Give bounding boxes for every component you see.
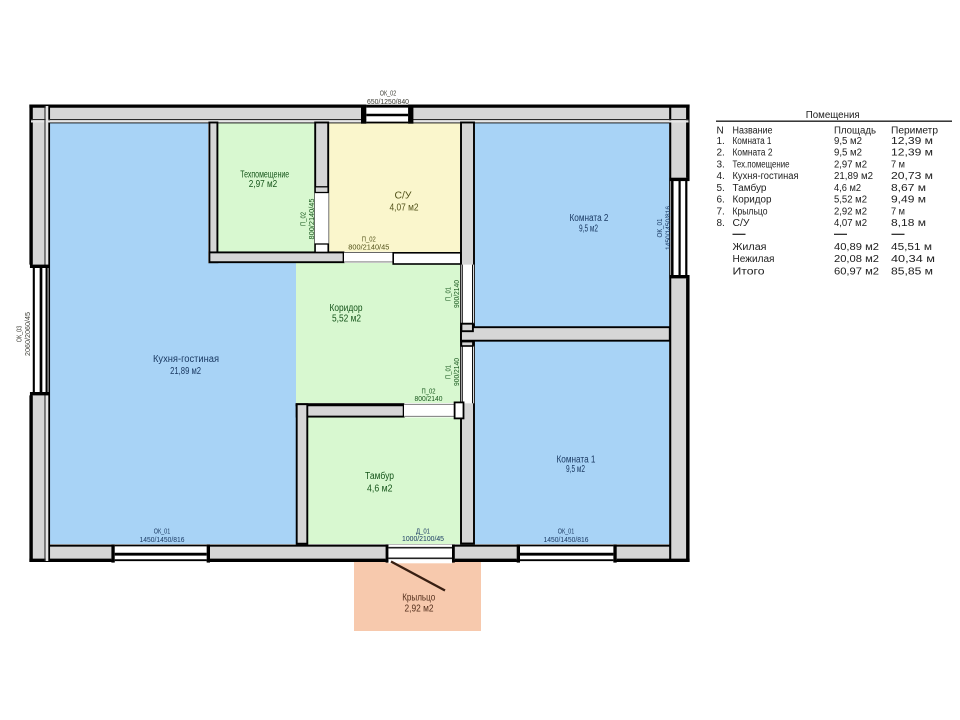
svg-text:8.: 8. [717,218,725,229]
svg-text:9,5 м2: 9,5 м2 [566,464,585,475]
svg-text:N: N [717,125,724,136]
svg-text:Крыльцо: Крыльцо [733,206,768,217]
svg-text:8,67 м: 8,67 м [891,183,926,194]
svg-text:1000/2100/45: 1000/2100/45 [402,534,444,543]
svg-text:21,89 м2: 21,89 м2 [834,171,873,182]
svg-text:Коридор: Коридор [733,195,772,206]
svg-text:40,89 м2: 40,89 м2 [834,242,879,253]
svg-text:7 м: 7 м [891,159,905,170]
svg-text:С/У: С/У [395,191,413,202]
svg-text:4,6 м2: 4,6 м2 [367,483,393,494]
svg-text:800/2140: 800/2140 [415,394,443,403]
svg-text:45,51 м: 45,51 м [891,242,932,253]
svg-text:20,08 м2: 20,08 м2 [834,254,879,265]
svg-text:85,85 м: 85,85 м [891,267,933,278]
svg-text:60,97 м2: 60,97 м2 [834,267,879,278]
svg-text:4,6 м2: 4,6 м2 [834,183,861,194]
svg-text:12,39 м: 12,39 м [891,148,933,159]
svg-text:5,52 м2: 5,52 м2 [332,314,361,325]
svg-text:ОК_02: ОК_02 [380,88,397,97]
svg-text:Коридор: Коридор [330,303,363,314]
svg-text:4,07 м2: 4,07 м2 [390,202,419,213]
svg-text:Комната 1: Комната 1 [733,136,772,147]
svg-text:5.: 5. [717,183,725,194]
svg-text:1.: 1. [717,136,725,147]
svg-text:1450/1450/816: 1450/1450/816 [544,535,589,544]
svg-text:4.: 4. [717,171,725,182]
svg-text:21,89 м2: 21,89 м2 [170,366,201,377]
svg-text:Тех.помещение: Тех.помещение [733,159,790,170]
svg-text:40,34 м: 40,34 м [891,254,935,265]
svg-text:2.: 2. [717,148,725,159]
svg-text:Комната 2: Комната 2 [733,148,773,159]
svg-text:2,97 м2: 2,97 м2 [249,179,278,190]
svg-text:Жилая: Жилая [733,242,767,253]
svg-text:3.: 3. [717,159,725,170]
svg-text:2,92 м2: 2,92 м2 [834,206,867,217]
svg-text:Помещения: Помещения [806,110,860,121]
svg-text:Итого: Итого [733,267,766,278]
svg-text:Кухня-гостиная: Кухня-гостиная [153,354,219,365]
svg-text:2,92 м2: 2,92 м2 [405,604,434,615]
svg-text:7.: 7. [717,206,725,217]
svg-text:800/2140/45: 800/2140/45 [348,243,389,252]
svg-text:Название: Название [733,125,773,136]
svg-text:9,5 м2: 9,5 м2 [579,224,598,235]
svg-text:8,18 м: 8,18 м [891,218,926,229]
svg-text:Крыльцо: Крыльцо [402,593,435,604]
svg-text:Нежилая: Нежилая [733,254,775,265]
svg-text:2060/2060/45: 2060/2060/45 [23,312,32,356]
svg-text:9,5 м2: 9,5 м2 [834,136,862,147]
svg-text:5,52 м2: 5,52 м2 [834,195,867,206]
svg-text:9,49 м: 9,49 м [891,195,926,206]
svg-text:1450/1450/816: 1450/1450/816 [140,535,185,544]
svg-text:20,73 м: 20,73 м [891,171,933,182]
svg-text:1450/1450/816: 1450/1450/816 [664,206,673,250]
svg-text:Кухня-гостиная: Кухня-гостиная [733,171,799,182]
svg-text:С/У: С/У [733,218,751,229]
svg-text:Комната 2: Комната 2 [570,213,609,224]
svg-text:4,07 м2: 4,07 м2 [834,218,867,229]
svg-text:900/2140: 900/2140 [452,280,461,308]
svg-text:9,5 м2: 9,5 м2 [834,148,862,159]
svg-text:900/2140: 900/2140 [452,358,461,386]
svg-text:Периметр: Периметр [891,125,938,136]
svg-text:Тамбур: Тамбур [733,182,767,194]
svg-text:Площадь: Площадь [834,125,876,136]
svg-text:Тамбур: Тамбур [365,471,394,482]
svg-text:2,97 м2: 2,97 м2 [834,159,867,170]
svg-text:6.: 6. [717,195,725,206]
svg-text:800/2140/45: 800/2140/45 [307,199,316,240]
svg-text:7 м: 7 м [891,206,905,217]
svg-text:12,39 м: 12,39 м [891,136,933,147]
svg-text:650/1250/840: 650/1250/840 [367,97,409,106]
